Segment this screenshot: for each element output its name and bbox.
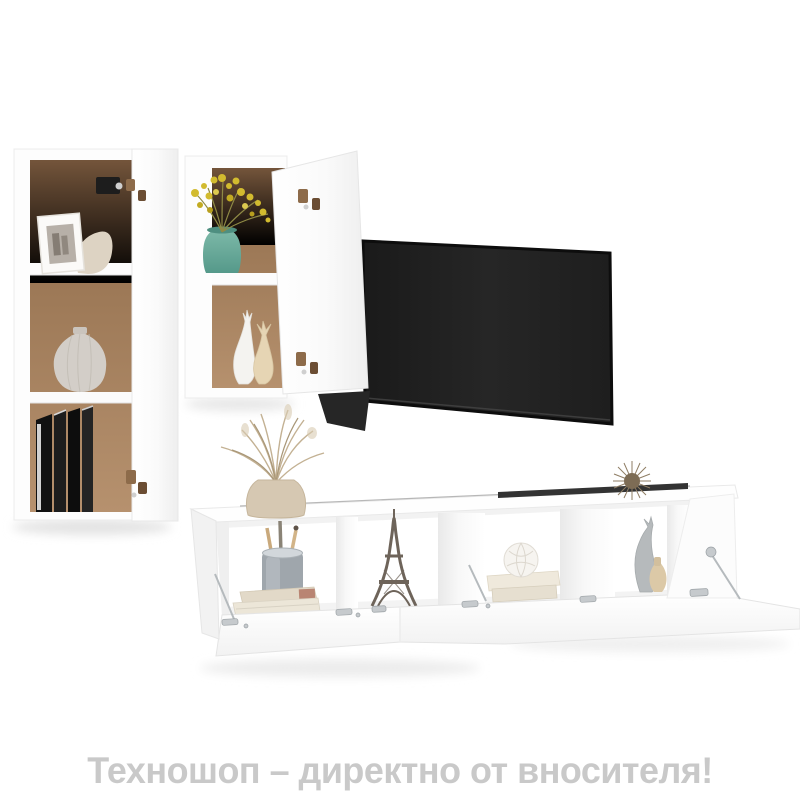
hinge [336, 609, 352, 616]
hinge-plate [310, 362, 318, 374]
cup-highlight [266, 556, 280, 594]
tall-wall-cabinet [14, 149, 178, 521]
hinge [372, 606, 386, 613]
hinge-plate [138, 190, 146, 201]
hinge-screw [304, 205, 309, 210]
hinge-plate [138, 482, 147, 494]
tv-screen [363, 241, 612, 424]
book [82, 406, 93, 512]
furniture-scene [0, 0, 800, 800]
red-book-spine [299, 589, 316, 600]
grass-plume [307, 427, 317, 439]
hinge-plate [298, 189, 308, 203]
hinge [462, 601, 478, 608]
brush-tip [294, 526, 299, 531]
hinge [690, 589, 708, 597]
vase-neck [73, 327, 87, 334]
stand-shadow [200, 659, 480, 677]
tv [363, 241, 612, 424]
hinge-plate [126, 470, 136, 484]
mini-vase-neck [654, 557, 661, 566]
screw [356, 613, 360, 617]
stay-cup [706, 547, 716, 557]
book-pages [37, 424, 41, 510]
screw [244, 624, 248, 628]
cabinet-shadow [185, 397, 295, 411]
divider [560, 509, 615, 602]
hinge-plate [126, 179, 135, 191]
cabinet-door [272, 151, 368, 394]
hinge-screw [116, 183, 123, 190]
grass-vase-body [246, 480, 305, 518]
shelf [212, 273, 285, 285]
hinge-screw [302, 370, 307, 375]
screw [486, 604, 490, 608]
hinge-plate [296, 352, 306, 366]
grass-plume [241, 423, 249, 437]
photo [46, 224, 76, 264]
book [68, 408, 80, 512]
slogan-caption: Техношоп – директно от вносителя! [12, 750, 788, 792]
book [54, 410, 66, 512]
hinge [222, 619, 238, 626]
shelf [30, 392, 132, 403]
short-cabinet-door [272, 151, 368, 394]
cabinet-door [132, 149, 178, 521]
shell-ornament [504, 543, 538, 577]
sputnik-core [624, 473, 640, 489]
divider [336, 517, 358, 613]
cup-rim [263, 548, 303, 558]
photo-frame [37, 213, 84, 273]
grass-plume [284, 404, 292, 420]
black-books [36, 406, 93, 512]
hinge [580, 596, 596, 603]
divider [438, 513, 485, 608]
hinge-screw [132, 493, 137, 498]
short-wall-cabinet [185, 156, 287, 398]
vase-body [203, 229, 241, 273]
hinge-plate [312, 198, 320, 210]
product-photo: Техношоп – директно от вносителя! [0, 0, 800, 800]
